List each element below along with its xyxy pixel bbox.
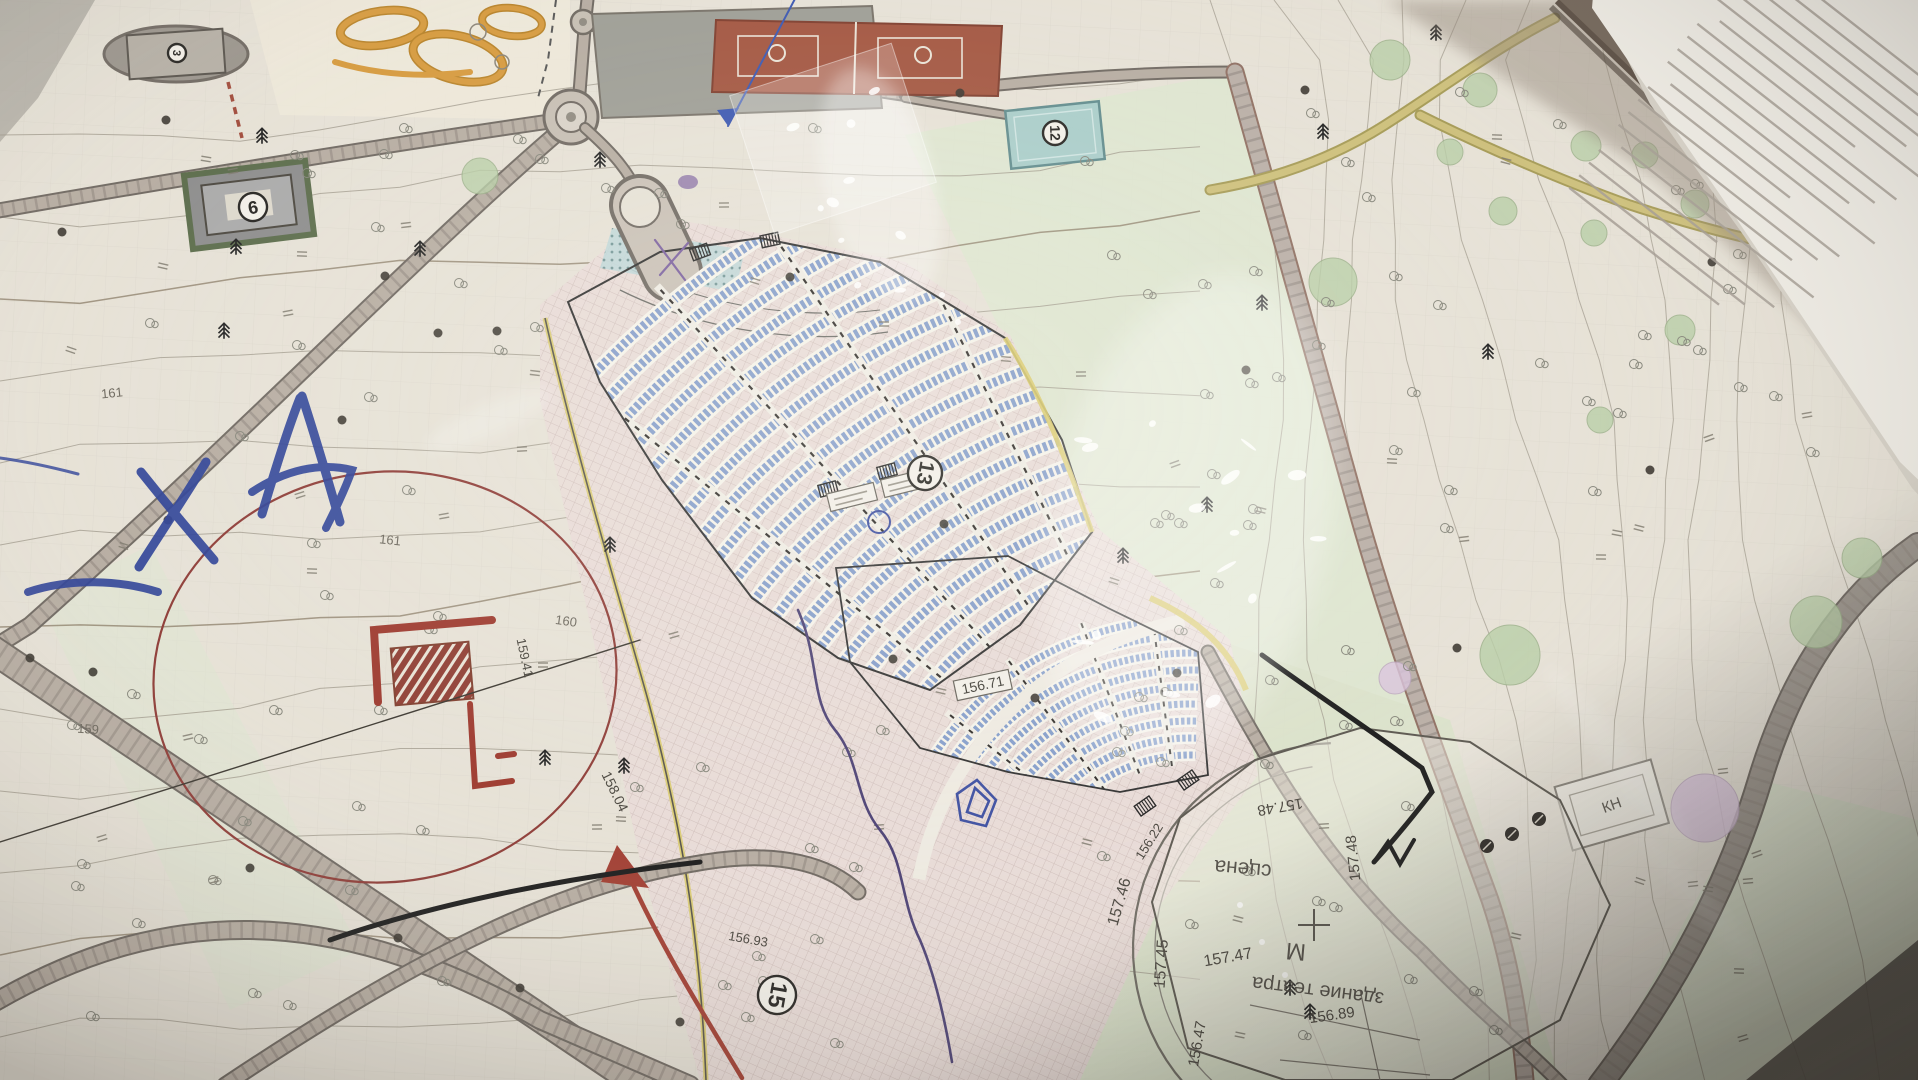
corner-vignette [0, 0, 1918, 1080]
photo-of-site-plan: сценаздание театраМКН156.71157.46157.451… [0, 0, 1918, 1080]
site-plan-svg: сценаздание театраМКН156.71157.46157.451… [0, 0, 1918, 1080]
